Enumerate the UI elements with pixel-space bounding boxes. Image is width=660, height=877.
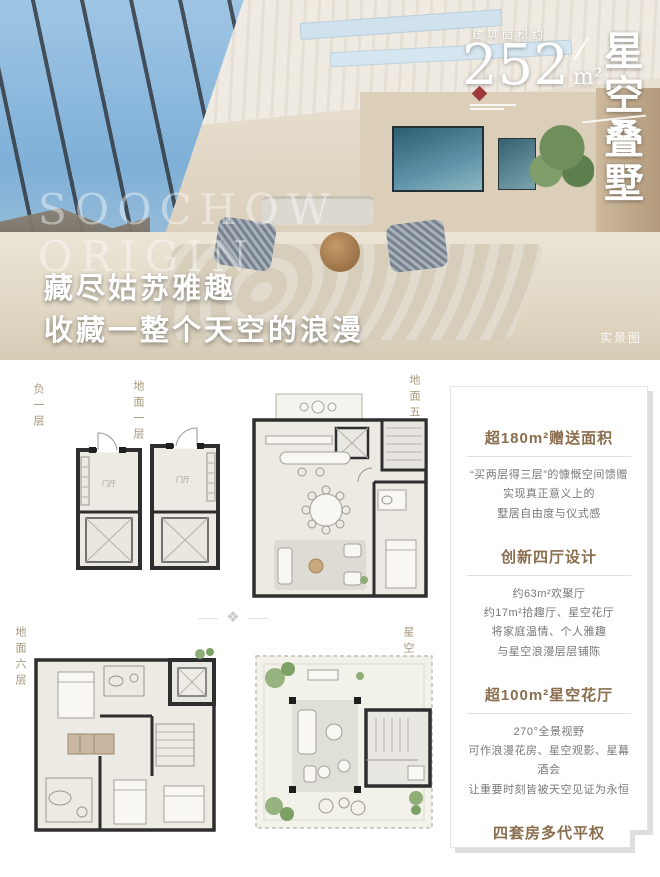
wall-art-graphic: [392, 126, 484, 192]
section-line: 约63m²欢聚厅: [465, 585, 633, 604]
divider: [467, 575, 631, 576]
section-line: 将家庭温情、个人雅趣: [465, 623, 633, 642]
floorplan-f5: [246, 390, 436, 610]
selling-points-card: 超180m²赠送面积 “买两层得三层”的慷慨空间馈赠 实现真正意义上的 墅居自由…: [450, 386, 648, 848]
section-line: 让重要时刻皆被天空见证为永恒: [465, 781, 633, 800]
section-line: 270°全景视野: [465, 723, 633, 742]
brand-logo: [470, 88, 540, 112]
plan-label-b1: 负一层: [30, 383, 46, 431]
section-line: 实现真正意义上的: [465, 485, 633, 504]
sidebar-section-four-halls: 创新四厅设计 约63m²欢聚厅 约17m²拾趣厅、星空花厅 将家庭温情、个人雅趣…: [465, 546, 633, 662]
brand-text-line: [470, 108, 504, 110]
brand-text-line: [470, 104, 516, 106]
marketing-page: 建筑面积约 252m² 星空 叠墅 SOOCHOW ORIGIN 藏尽姑苏雅趣 …: [0, 0, 660, 877]
floorplan-f1: 门厅: [150, 426, 220, 573]
headline: 藏尽姑苏雅趣 收藏一整个天空的浪漫: [44, 268, 364, 352]
divider: [467, 713, 631, 714]
floorplan-b1: 门厅: [76, 430, 142, 572]
sidebar-section-sky-hall: 超100m²星空花厅 270°全景视野 可作浪漫花房、星空观影、星幕酒会 让重要…: [465, 684, 633, 800]
section-line: 与星空浪漫层层铺陈: [465, 643, 633, 662]
section-line: “买两层得三层”的慷慨空间馈赠: [465, 466, 633, 485]
section-title: 四套房多代平权: [465, 822, 633, 843]
section-line: 墅居自由度与仪式感: [465, 505, 633, 524]
watermark-title: SOOCHOW ORIGIN: [38, 186, 338, 280]
section-title: 超100m²星空花厅: [465, 684, 633, 705]
hero-photo: 建筑面积约 252m² 星空 叠墅 SOOCHOW ORIGIN 藏尽姑苏雅趣 …: [0, 0, 660, 360]
compass-ornament: ❖: [200, 608, 266, 628]
room-label-foyer: 门厅: [176, 475, 190, 484]
section-line: 约17m²拾趣厅、星空花厅: [465, 604, 633, 623]
floorplan-terrace: [248, 648, 440, 852]
brand-diamond-icon: [472, 86, 488, 102]
product-line2: 叠墅: [588, 118, 660, 206]
divider: [467, 456, 631, 457]
headline-line2: 收藏一整个天空的浪漫: [44, 310, 364, 352]
floorplan-f6: [30, 646, 226, 842]
product-line1: 星空: [588, 30, 660, 118]
photo-tag: 实景图: [600, 329, 642, 346]
plan-label-f6: 地面六层: [12, 626, 28, 690]
plant-graphic: [530, 120, 594, 212]
sidebar-section-gift-area: 超180m²赠送面积 “买两层得三层”的慷慨空间馈赠 实现真正意义上的 墅居自由…: [465, 427, 633, 524]
section-title: 创新四厅设计: [465, 546, 633, 567]
headline-line1: 藏尽姑苏雅趣: [44, 268, 364, 310]
section-title: 超180m²赠送面积: [465, 427, 633, 448]
section-line: 可作浪漫花房、星空观影、星幕酒会: [465, 742, 633, 781]
section-line: 主卧套房尊享双衣帽间: [465, 861, 633, 877]
room-label-foyer: 门厅: [102, 479, 116, 488]
armchair-graphic: [385, 219, 448, 274]
